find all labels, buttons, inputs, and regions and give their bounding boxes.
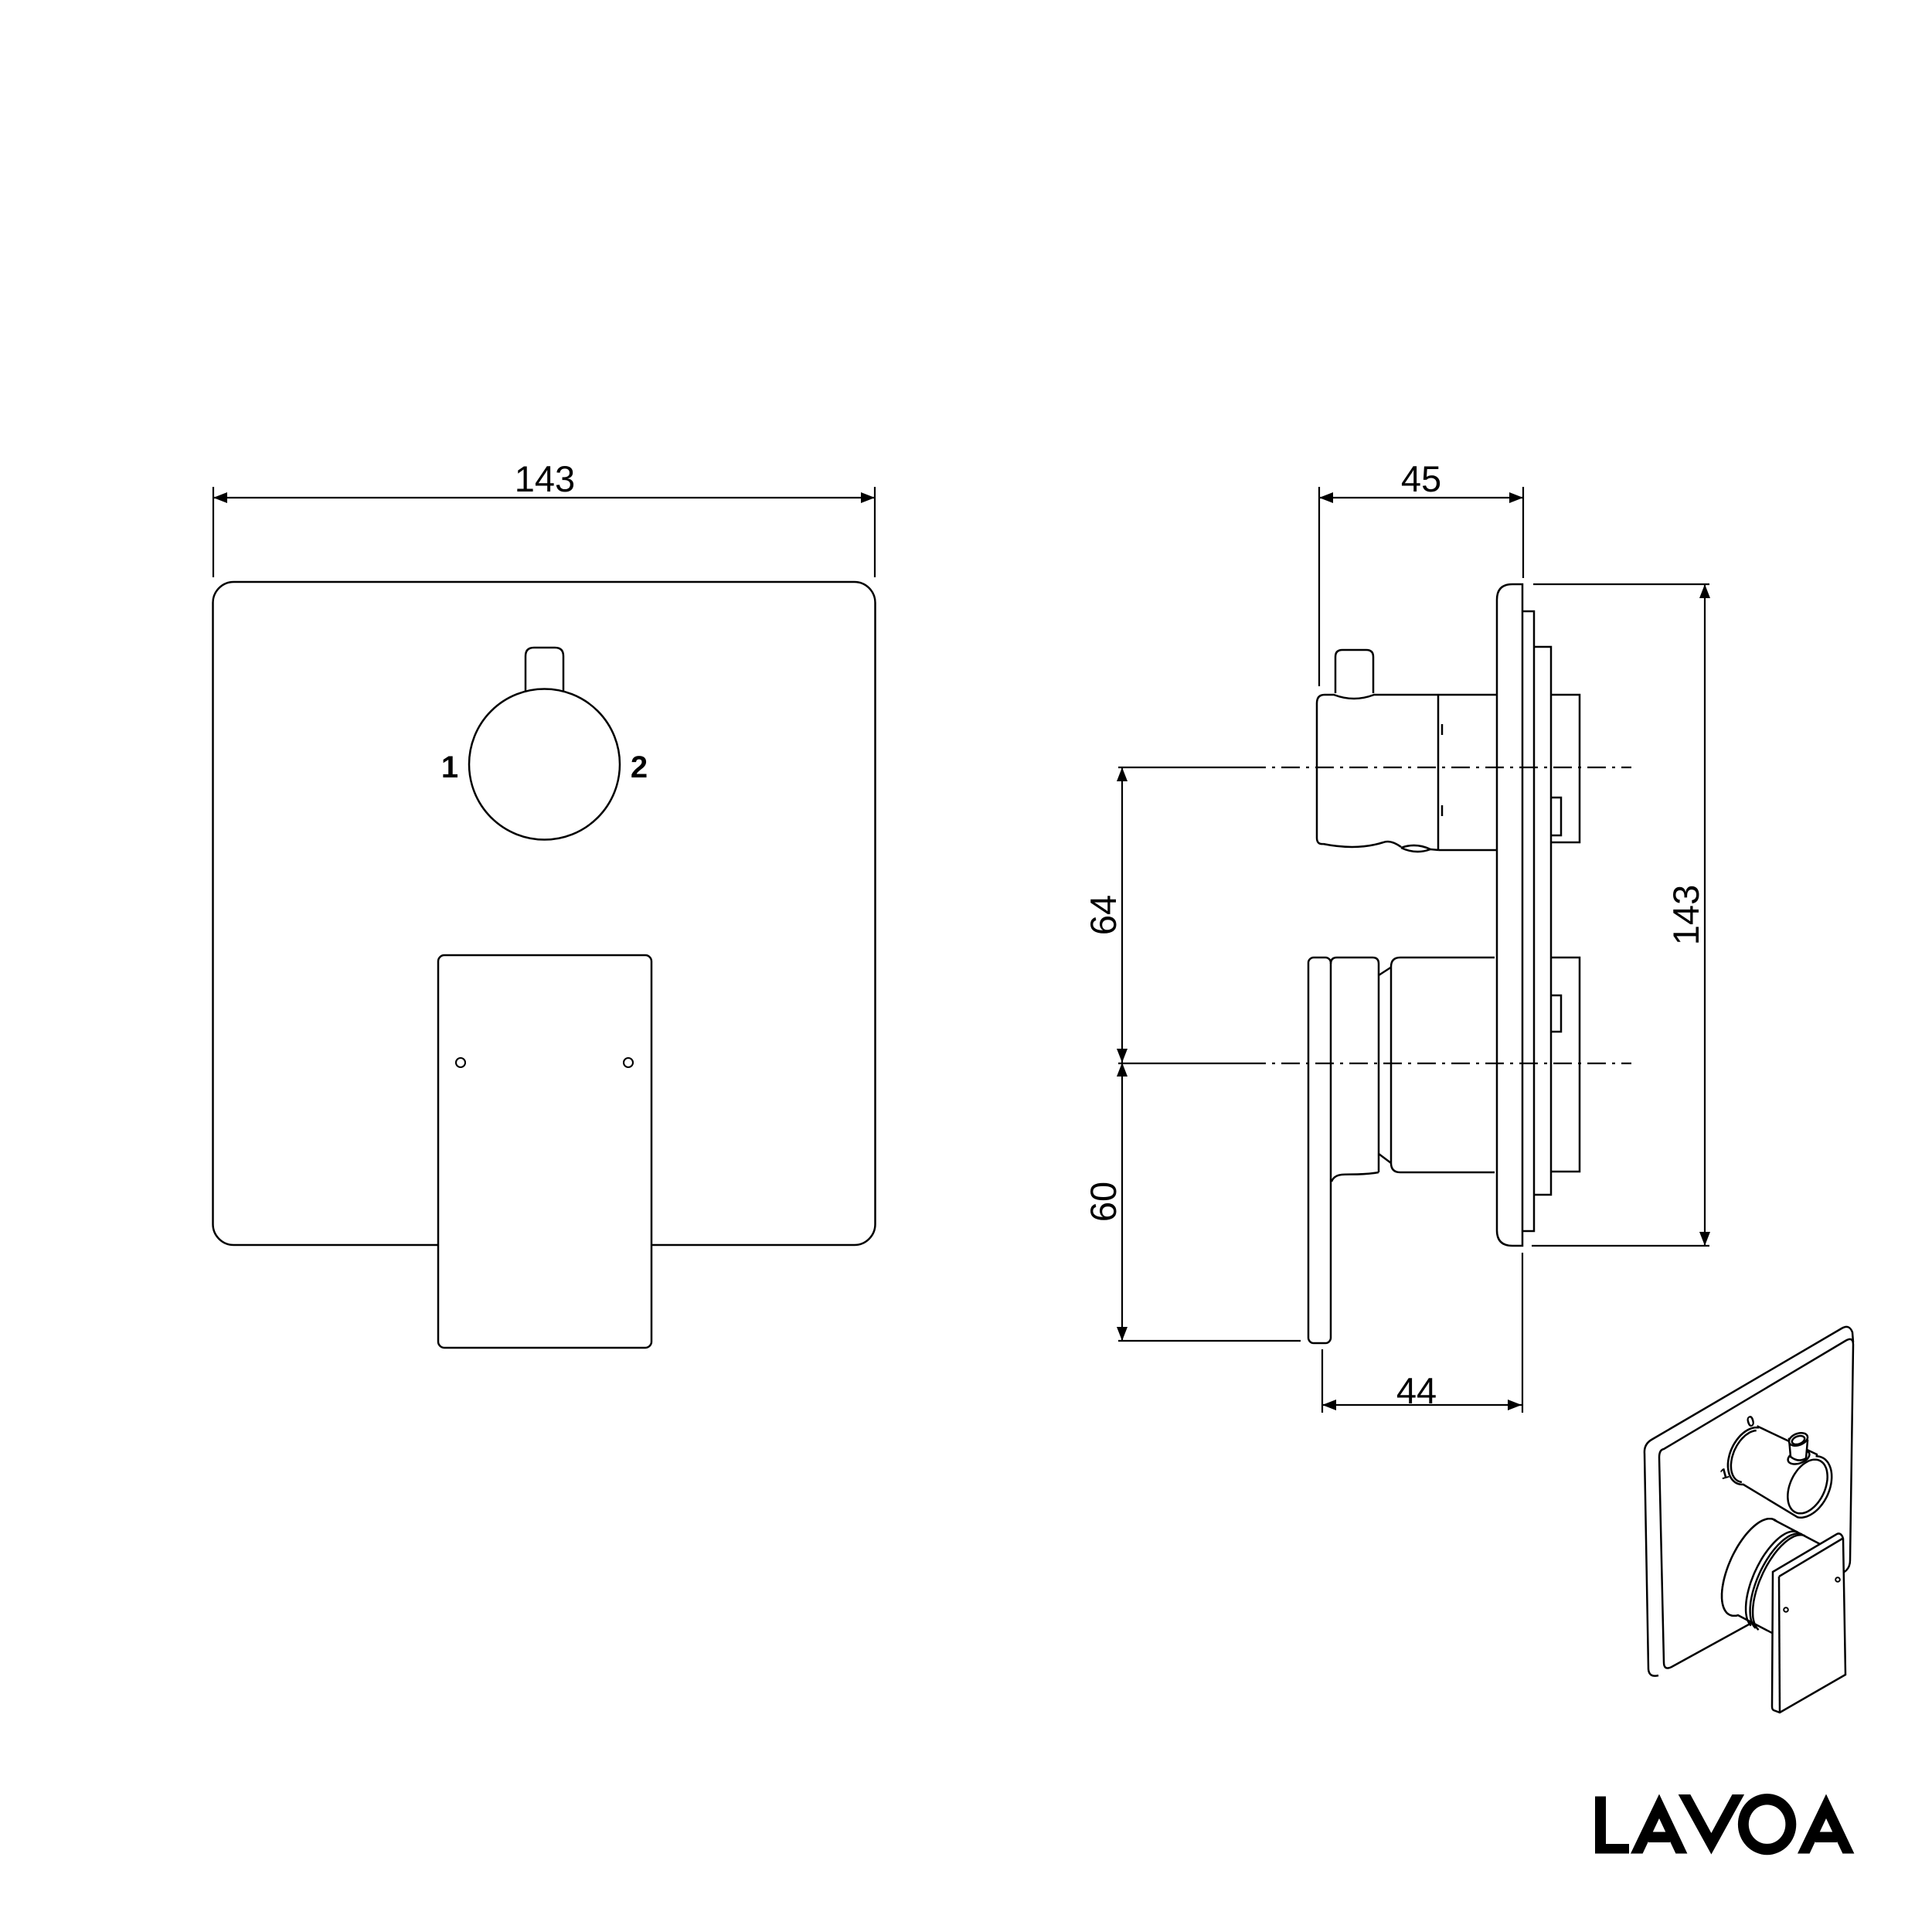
svg-text:2: 2 [631, 750, 648, 784]
svg-text:143: 143 [515, 458, 575, 499]
svg-text:64: 64 [1083, 895, 1124, 935]
svg-text:143: 143 [1665, 885, 1706, 945]
svg-text:60: 60 [1083, 1182, 1124, 1222]
svg-text:45: 45 [1401, 458, 1441, 499]
svg-text:1: 1 [441, 750, 458, 784]
svg-text:44: 44 [1396, 1370, 1437, 1411]
